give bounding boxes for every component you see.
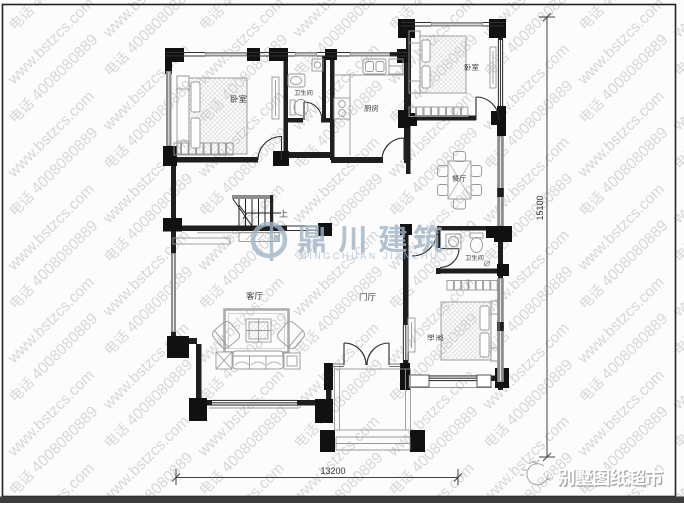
svg-text:13200: 13200 [320, 466, 345, 476]
svg-text:DINGCHUAN JIANZHU: DINGCHUAN JIANZHU [300, 251, 439, 261]
svg-text:15100: 15100 [535, 195, 545, 220]
